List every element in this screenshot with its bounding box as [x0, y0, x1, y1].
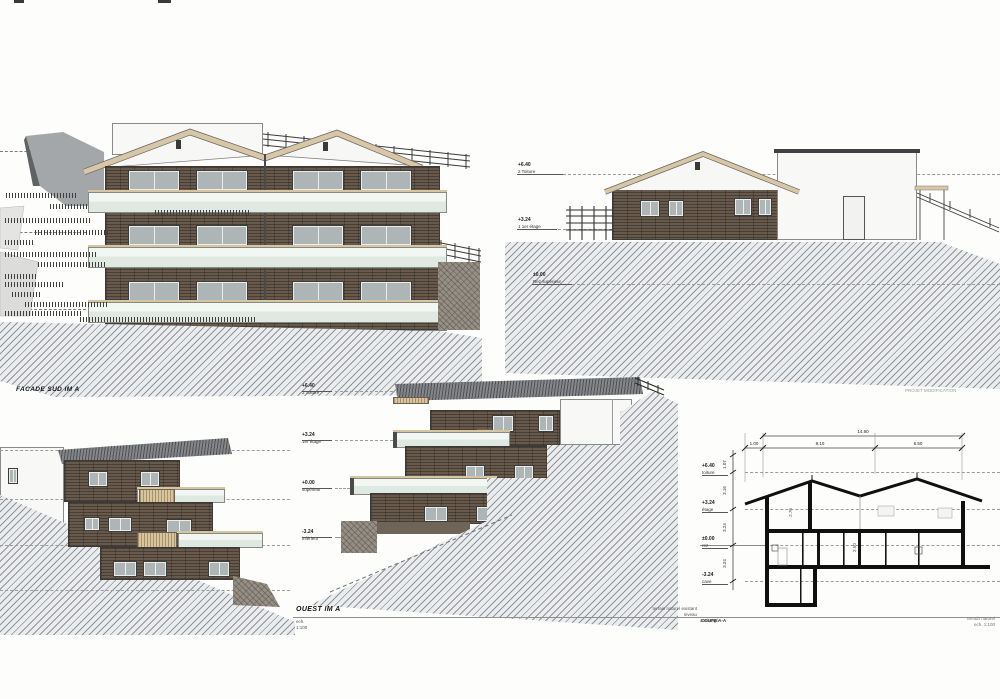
level-value: +6.40 — [302, 383, 315, 389]
scale-value: 1:100 — [296, 625, 307, 630]
level-rule — [702, 512, 728, 513]
window — [538, 415, 554, 432]
scan-mark — [158, 0, 171, 3]
level-rule — [702, 548, 728, 549]
level-rule — [302, 488, 332, 489]
dim-inner: 2.70 — [788, 508, 793, 517]
view-title: OUEST IM A — [296, 606, 341, 613]
window — [196, 170, 248, 191]
window — [492, 415, 514, 432]
gable — [607, 153, 797, 190]
level-rule — [702, 475, 728, 476]
section-view: PROJET MODIFICATION — [700, 385, 1000, 635]
vegetation-row — [35, 230, 110, 235]
scale-label: ech. — [296, 619, 305, 624]
window — [640, 200, 660, 217]
level-rule — [302, 440, 332, 441]
level-label: +3.24 1er étage — [302, 433, 321, 444]
vegetation-row — [80, 317, 255, 322]
window — [734, 198, 752, 216]
level-line — [335, 391, 393, 392]
vegetation-row — [25, 302, 107, 307]
stone-base — [233, 576, 280, 607]
window — [668, 200, 684, 217]
window — [758, 198, 772, 216]
window — [128, 170, 180, 191]
dim-segment: 8.10 — [808, 441, 832, 446]
level-label: +6.40 toiture — [702, 464, 715, 475]
window — [128, 225, 180, 246]
dim-vertical: 3.16 — [722, 486, 727, 495]
vegetation-row — [12, 292, 40, 297]
level-value: -3.24 — [302, 529, 313, 535]
terrain-note: terrain naturel existant — [607, 606, 697, 611]
level-value: +0.00 — [302, 480, 315, 486]
vegetation-row — [5, 218, 91, 223]
section-linework — [700, 385, 1000, 635]
level-value: +6.40 — [702, 463, 715, 469]
dim-vertical: 3.24 — [722, 523, 727, 532]
west-elevation: +6.40 2 Toiture +3.24 1er étage +0.00 su… — [290, 360, 700, 650]
corner-note: ech. 1:100 — [940, 622, 995, 627]
dim-segment: 6.50 — [906, 441, 930, 446]
level-value: -3.24 — [702, 572, 713, 578]
window — [360, 225, 412, 246]
wood-balustrade — [139, 489, 175, 503]
corner-note: terrain naturel — [940, 616, 995, 621]
window — [8, 468, 18, 484]
level-label: -3.24 inférieur — [302, 530, 318, 541]
east-elevation — [0, 425, 300, 635]
window — [140, 471, 160, 487]
architectural-sheet: FACADE SUD IM A +6.40 2 Toiture +3.24 1 … — [0, 0, 1000, 699]
dim-inner: 2.50 — [852, 543, 857, 552]
vegetation-row — [5, 252, 97, 257]
window — [360, 281, 412, 302]
slab-cap — [393, 432, 397, 448]
window — [292, 281, 344, 302]
level-value: +3.24 — [702, 500, 715, 506]
level-label: +6.40 2 Toiture — [302, 384, 319, 395]
dim-vertical: 1.07 — [722, 460, 727, 469]
window — [196, 281, 248, 302]
section-title: COUPE A-A — [701, 618, 726, 623]
vegetation-row — [5, 240, 33, 245]
vegetation-row — [5, 311, 83, 316]
level-value: ±0.00 — [702, 536, 714, 542]
dim-vertical: 3.24 — [722, 559, 727, 568]
balcony-slab — [88, 247, 447, 268]
window — [292, 225, 344, 246]
vegetation-row — [38, 262, 106, 267]
vegetation-row — [5, 282, 63, 287]
view-title: FACADE SUD IM A — [16, 386, 80, 393]
dim-total: 14.60 — [848, 429, 878, 434]
window — [292, 170, 344, 191]
level-label: +3.24 étage — [702, 501, 715, 512]
scan-mark — [14, 0, 24, 3]
level-label: -3.24 cave — [702, 573, 713, 584]
window — [88, 471, 108, 487]
slab-cap — [350, 478, 354, 495]
level-label: ±0.00 rez — [702, 537, 714, 548]
wood-balustrade — [137, 532, 177, 548]
vegetation-row — [5, 274, 37, 279]
vegetation-row — [155, 210, 250, 215]
window — [360, 170, 412, 191]
window — [108, 517, 132, 532]
level-value: +3.24 — [302, 432, 315, 438]
level-rule — [302, 391, 332, 392]
window — [208, 561, 230, 577]
stone-wall — [438, 262, 480, 330]
balcony-slab — [88, 192, 447, 213]
wall-joint — [612, 399, 613, 445]
level-line — [335, 488, 350, 489]
terrain-line — [325, 510, 525, 600]
vegetation-row — [6, 193, 76, 198]
window — [84, 517, 100, 531]
vegetation-row — [50, 204, 88, 209]
roof-eave — [393, 397, 429, 404]
dim-segment: 1.00 — [746, 441, 762, 446]
roof — [393, 375, 645, 402]
balcony-slab — [178, 533, 263, 548]
window — [196, 225, 248, 246]
level-rule — [702, 584, 728, 585]
window — [128, 281, 180, 302]
level-label: +0.00 supérieur — [302, 481, 321, 492]
level-line — [335, 440, 393, 441]
window — [143, 561, 167, 577]
window — [113, 561, 137, 577]
